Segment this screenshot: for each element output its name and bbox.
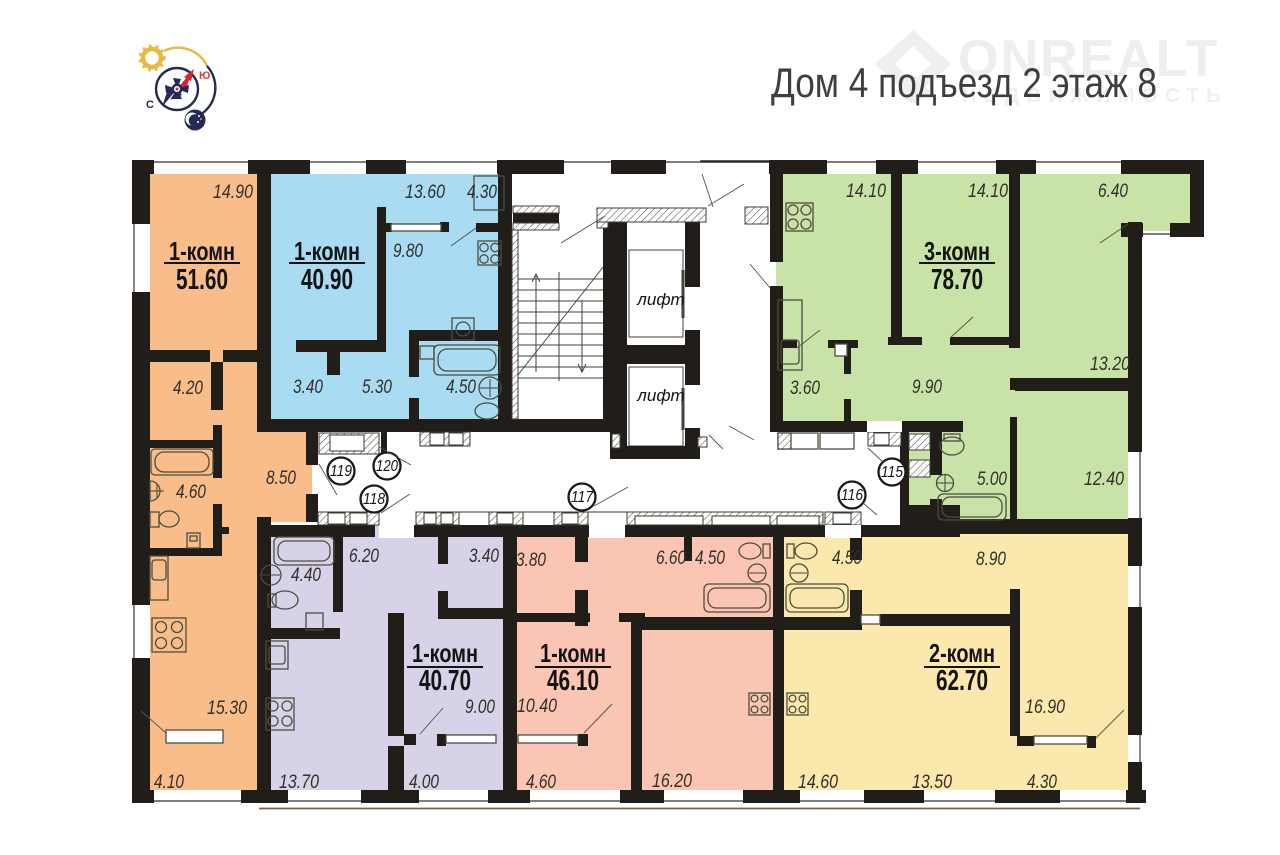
svg-text:2-комн: 2-комн bbox=[929, 638, 995, 668]
svg-text:116: 116 bbox=[841, 487, 863, 504]
svg-text:6.60: 6.60 bbox=[656, 548, 686, 569]
svg-text:лифт: лифт bbox=[636, 290, 684, 309]
svg-text:4.50: 4.50 bbox=[832, 548, 862, 569]
svg-text:40.90: 40.90 bbox=[301, 264, 353, 296]
svg-text:118: 118 bbox=[363, 491, 385, 508]
svg-text:51.60: 51.60 bbox=[176, 264, 228, 296]
svg-text:46.10: 46.10 bbox=[547, 665, 599, 697]
svg-text:16.90: 16.90 bbox=[1025, 697, 1065, 718]
svg-text:5.00: 5.00 bbox=[977, 469, 1007, 490]
svg-text:4.30: 4.30 bbox=[467, 182, 497, 203]
svg-text:117: 117 bbox=[571, 489, 594, 506]
svg-text:С: С bbox=[146, 99, 154, 111]
svg-text:13.60: 13.60 bbox=[405, 182, 445, 203]
svg-text:4.50: 4.50 bbox=[446, 377, 476, 398]
svg-text:лифт: лифт bbox=[636, 386, 684, 405]
svg-text:6.20: 6.20 bbox=[349, 546, 379, 567]
svg-text:40.70: 40.70 bbox=[419, 665, 471, 697]
svg-text:4.50: 4.50 bbox=[695, 548, 725, 569]
svg-text:4.10: 4.10 bbox=[154, 772, 184, 793]
svg-text:5.30: 5.30 bbox=[362, 377, 392, 398]
svg-text:12.40: 12.40 bbox=[1084, 469, 1124, 490]
svg-text:3.60: 3.60 bbox=[790, 378, 820, 399]
svg-text:3.40: 3.40 bbox=[469, 546, 499, 567]
svg-text:1-комн: 1-комн bbox=[169, 236, 235, 266]
svg-text:9.80: 9.80 bbox=[393, 241, 423, 262]
svg-text:Ю: Ю bbox=[199, 70, 210, 82]
svg-text:4.60: 4.60 bbox=[176, 482, 206, 503]
svg-text:115: 115 bbox=[881, 464, 903, 481]
svg-text:Дом 4 подъезд 2 этаж 8: Дом 4 подъезд 2 этаж 8 bbox=[771, 59, 1157, 106]
svg-text:15.30: 15.30 bbox=[207, 698, 247, 719]
svg-text:13.70: 13.70 bbox=[279, 772, 319, 793]
svg-text:10.40: 10.40 bbox=[517, 696, 557, 717]
svg-text:4.60: 4.60 bbox=[526, 772, 556, 793]
svg-text:119: 119 bbox=[330, 463, 352, 480]
svg-text:3.80: 3.80 bbox=[516, 550, 546, 571]
svg-text:4.30: 4.30 bbox=[1027, 772, 1057, 793]
svg-text:16.20: 16.20 bbox=[652, 771, 692, 792]
svg-text:9.00: 9.00 bbox=[465, 697, 495, 718]
svg-text:8.50: 8.50 bbox=[266, 468, 296, 489]
svg-text:4.00: 4.00 bbox=[409, 772, 439, 793]
svg-text:1-комн: 1-комн bbox=[412, 638, 478, 668]
svg-text:8.90: 8.90 bbox=[976, 549, 1006, 570]
svg-text:9.90: 9.90 bbox=[912, 377, 942, 398]
svg-text:14.10: 14.10 bbox=[968, 181, 1008, 202]
svg-text:4.40: 4.40 bbox=[291, 565, 321, 586]
svg-text:14.10: 14.10 bbox=[846, 181, 886, 202]
svg-text:1-комн: 1-комн bbox=[294, 236, 360, 266]
svg-text:13.50: 13.50 bbox=[912, 772, 952, 793]
svg-text:13.20: 13.20 bbox=[1090, 354, 1130, 375]
svg-text:6.40: 6.40 bbox=[1098, 181, 1128, 202]
svg-text:3-комн: 3-комн bbox=[924, 236, 990, 266]
svg-text:78.70: 78.70 bbox=[931, 264, 983, 296]
svg-text:4.20: 4.20 bbox=[173, 378, 203, 399]
svg-text:120: 120 bbox=[376, 458, 398, 475]
svg-text:14.60: 14.60 bbox=[798, 772, 838, 793]
svg-text:3.40: 3.40 bbox=[293, 377, 323, 398]
svg-text:1-комн: 1-комн bbox=[540, 638, 606, 668]
svg-text:62.70: 62.70 bbox=[936, 665, 988, 697]
svg-text:14.90: 14.90 bbox=[213, 182, 253, 203]
